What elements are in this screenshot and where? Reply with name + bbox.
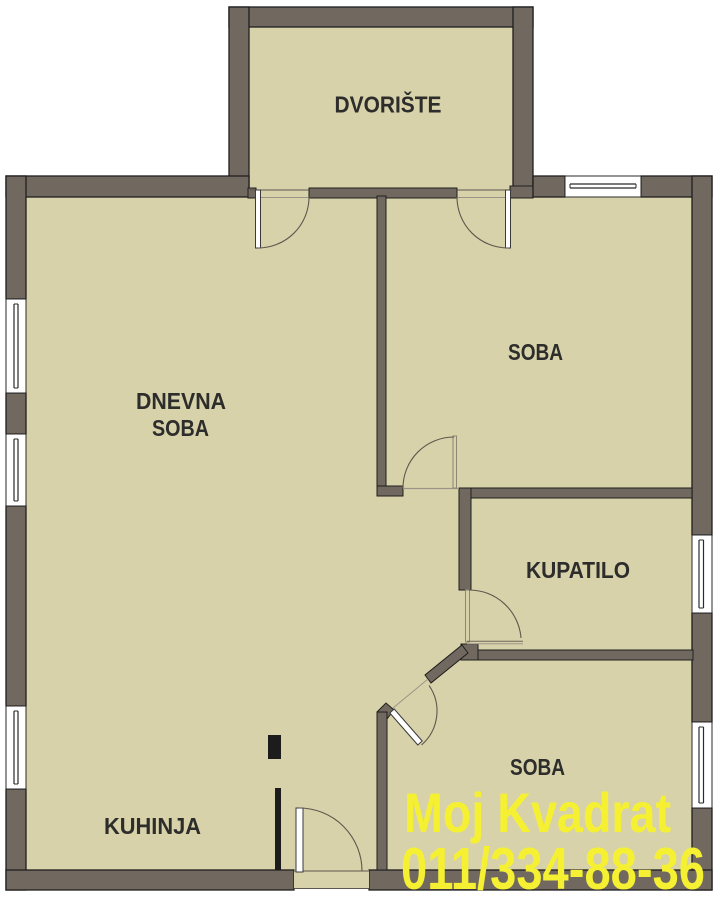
svg-text:Moj Kvadrat: Moj Kvadrat [404,781,671,844]
svg-text:SOBA: SOBA [510,754,565,780]
svg-text:KUHINJA: KUHINJA [104,813,201,839]
svg-text:SOBA: SOBA [152,415,209,441]
svg-text:DVORIŠTE: DVORIŠTE [335,91,442,118]
svg-text:DNEVNA: DNEVNA [136,388,226,414]
svg-text:011/334-88-36: 011/334-88-36 [401,836,705,900]
svg-text:SOBA: SOBA [508,339,563,365]
svg-text:KUPATILO: KUPATILO [526,557,630,583]
